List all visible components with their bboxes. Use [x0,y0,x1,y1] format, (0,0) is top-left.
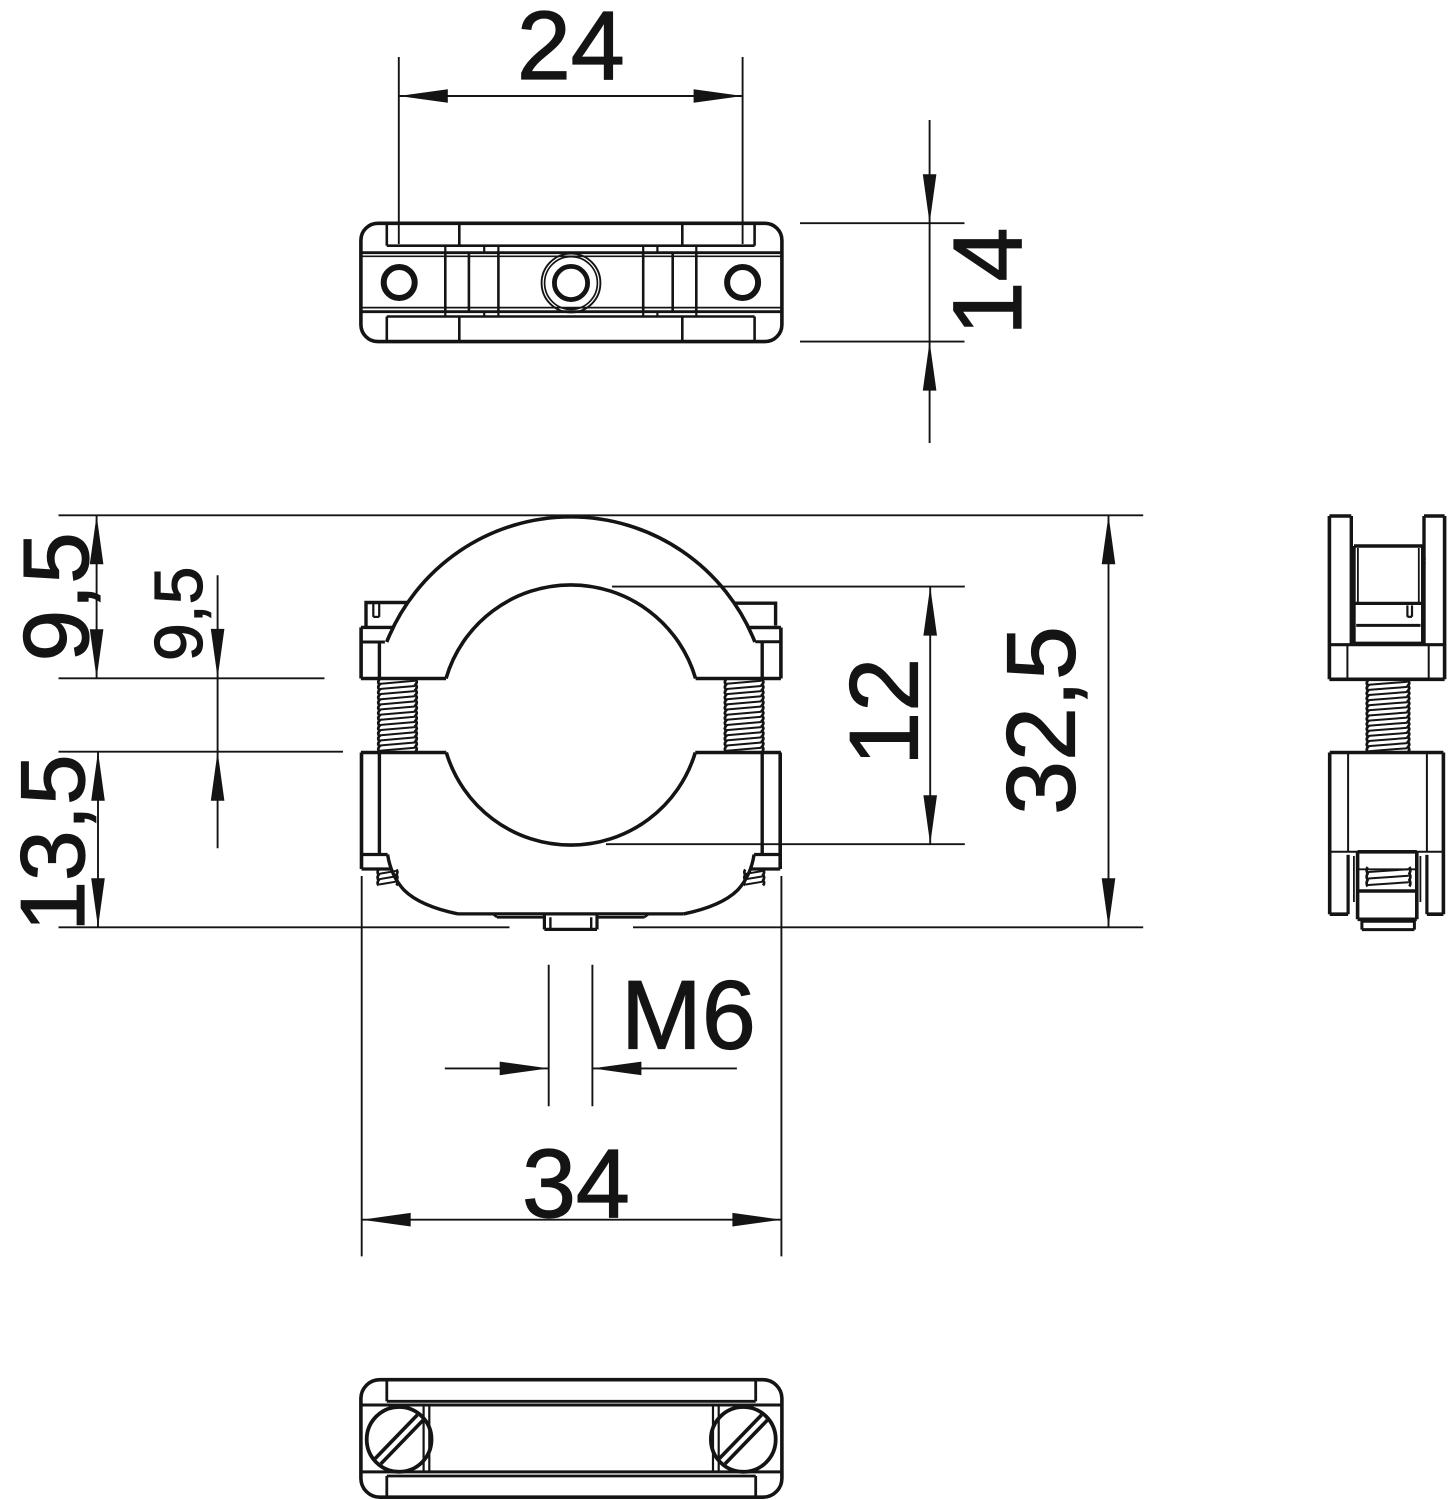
svg-text:9,5: 9,5 [141,567,217,662]
svg-text:34: 34 [522,1129,630,1238]
svg-text:32,5: 32,5 [987,626,1096,815]
svg-text:13,5: 13,5 [3,754,104,931]
svg-text:M6: M6 [621,961,756,1070]
svg-text:24: 24 [517,0,625,100]
svg-text:14: 14 [933,228,1042,336]
svg-text:12: 12 [830,658,939,766]
svg-text:9,5: 9,5 [4,532,108,661]
